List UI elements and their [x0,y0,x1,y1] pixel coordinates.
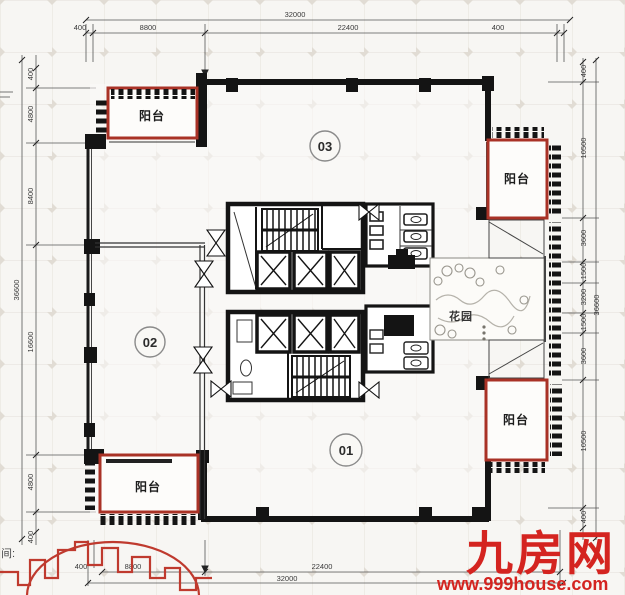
balcony-top-left: 阳台 [108,88,197,138]
balcony-bottom-right: 阳台 [486,380,547,460]
dim-right-3600a: 3600 [579,230,588,247]
dim-top-22400: 22400 [338,23,359,32]
dim-top-400a: 400 [74,23,87,32]
garden-area: 花园 [430,258,544,341]
dim-top-total: 32000 [285,10,306,19]
watermark-url: www.999house.com [436,574,608,594]
dim-right-400a: 400 [579,65,588,78]
dim-left-4800b: 4800 [26,474,35,491]
dim-left-16600: 16600 [26,332,35,353]
dim-left-4800a: 4800 [26,106,35,123]
washroom-lower [366,306,433,372]
balcony-top-left-label: 阳台 [139,108,165,123]
balcony-bottom-left: 阳台 [100,455,198,512]
dim-left-total: 36600 [12,280,21,301]
dim-right-10500a: 10500 [579,138,588,159]
core-lower [228,312,363,400]
dim-left-400a: 400 [26,68,35,81]
dim-top-8800: 8800 [140,23,157,32]
dim-right-10500b: 10500 [579,431,588,452]
balcony-bottom-left-label: 阳台 [135,479,161,494]
floor-plan-drawing: 32000 400 8800 22400 400 400 8800 22400 … [0,0,625,595]
core-upper [228,204,363,292]
dim-bottom-22400: 22400 [312,562,333,571]
dim-right-3600b: 3600 [579,348,588,365]
dim-right-1500b: 1500 [579,314,588,331]
dim-bottom-total: 32000 [277,574,298,583]
unit-03-label: 03 [318,139,332,154]
dim-bottom-400: 400 [75,562,88,571]
dim-right-3200: 3200 [579,289,588,306]
corner-note: 间: [1,547,15,560]
washroom-dark-fixture-lower [384,315,414,336]
dim-right-1500a: 1500 [579,263,588,280]
unit-01-label: 01 [339,443,353,458]
balcony-top-right-label: 阳台 [504,171,530,186]
dim-left-8400: 8400 [26,188,35,205]
floor-plan-page: 32000 400 8800 22400 400 400 8800 22400 … [0,0,625,595]
elevator-shafts-lower [257,315,359,352]
garden-dots [482,325,485,340]
dim-right-400b: 400 [579,511,588,524]
unit-02-label: 02 [143,335,157,350]
balcony-top-right: 阳台 [488,140,547,218]
dim-left-400b: 400 [26,531,35,544]
dim-right-total: 36600 [592,295,601,316]
dim-top-400b: 400 [492,23,505,32]
elevator-shafts-upper [257,252,359,289]
watermark-brand: 九房网 [466,527,616,580]
garden-label: 花园 [449,309,473,323]
balcony-bottom-right-label: 阳台 [503,412,529,427]
